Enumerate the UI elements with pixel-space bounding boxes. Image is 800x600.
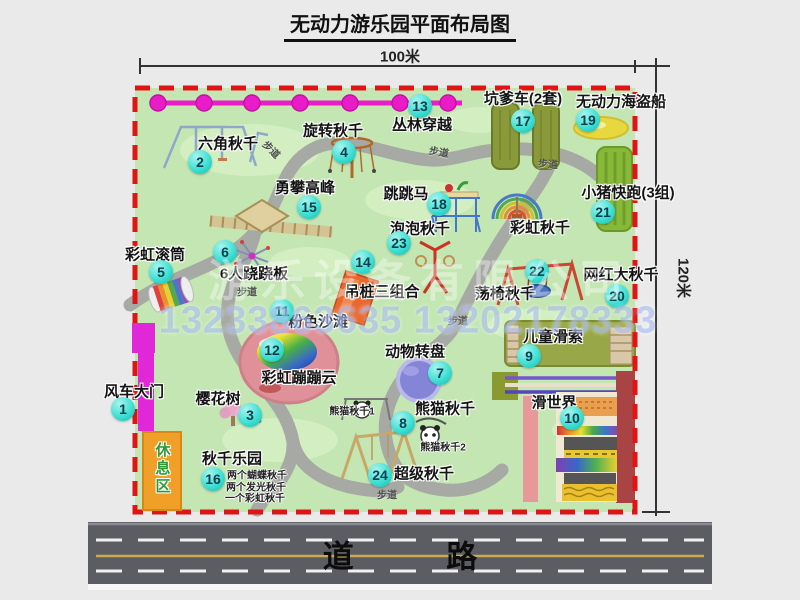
dimension-width-label: 100米 (380, 46, 420, 67)
watermark-phone: 13233863635 13202178333 (159, 300, 658, 343)
road-label: 道 路 (281, 532, 520, 577)
animal-turntable-icon (398, 359, 440, 401)
page-title: 无动力游乐园平面布局图 (284, 8, 516, 42)
park-layout-plan: 无动力游乐园平面布局图 100米 120米 休息区 游乐设备有限公司 13233… (0, 0, 800, 600)
pirate-ship-icon (574, 117, 628, 139)
rest-area-label: 休息区 (152, 442, 173, 496)
piggy-run-icon (597, 147, 632, 231)
dimension-height-label: 120米 (674, 258, 695, 298)
